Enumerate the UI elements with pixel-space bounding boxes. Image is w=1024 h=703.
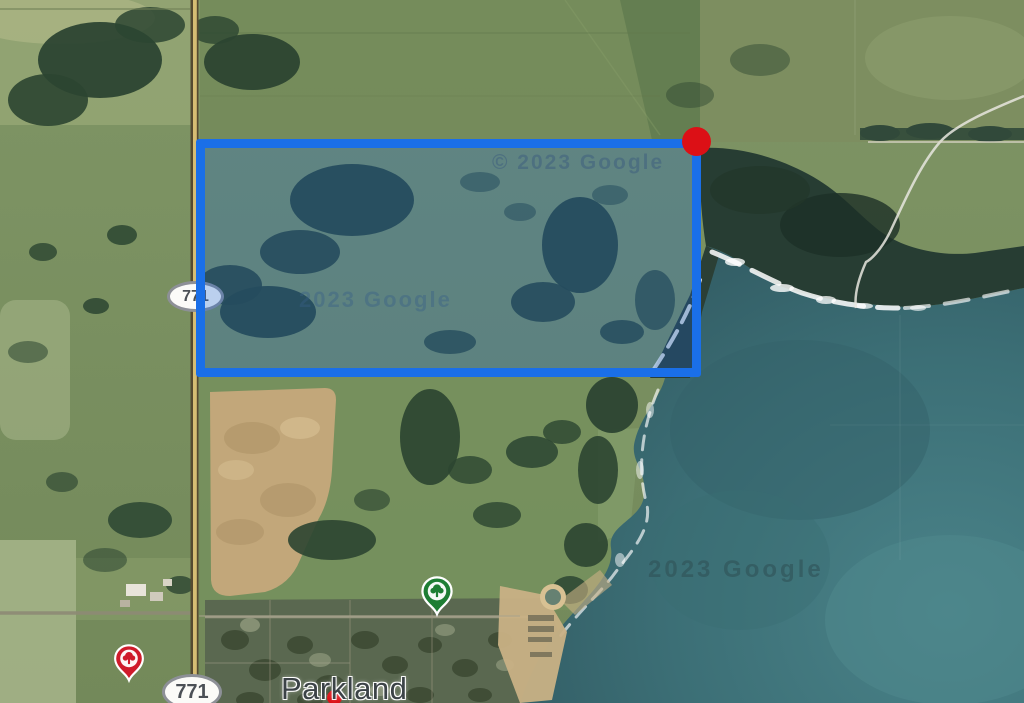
road-shield-label: 771 <box>175 681 208 703</box>
poi-pin-icon <box>113 644 145 684</box>
map-viewport: © 2023 Google 2023 Google 2023 Google 77… <box>0 0 1024 703</box>
poi-pin-red[interactable] <box>113 644 145 689</box>
boundary-corner-marker <box>682 127 711 156</box>
property-boundary-highlight <box>196 139 701 377</box>
park-pin-icon <box>420 576 454 618</box>
park-pin-green[interactable] <box>420 576 454 623</box>
road-shield-771-lower: 771 <box>162 674 222 703</box>
town-label: Parkland <box>281 671 407 703</box>
